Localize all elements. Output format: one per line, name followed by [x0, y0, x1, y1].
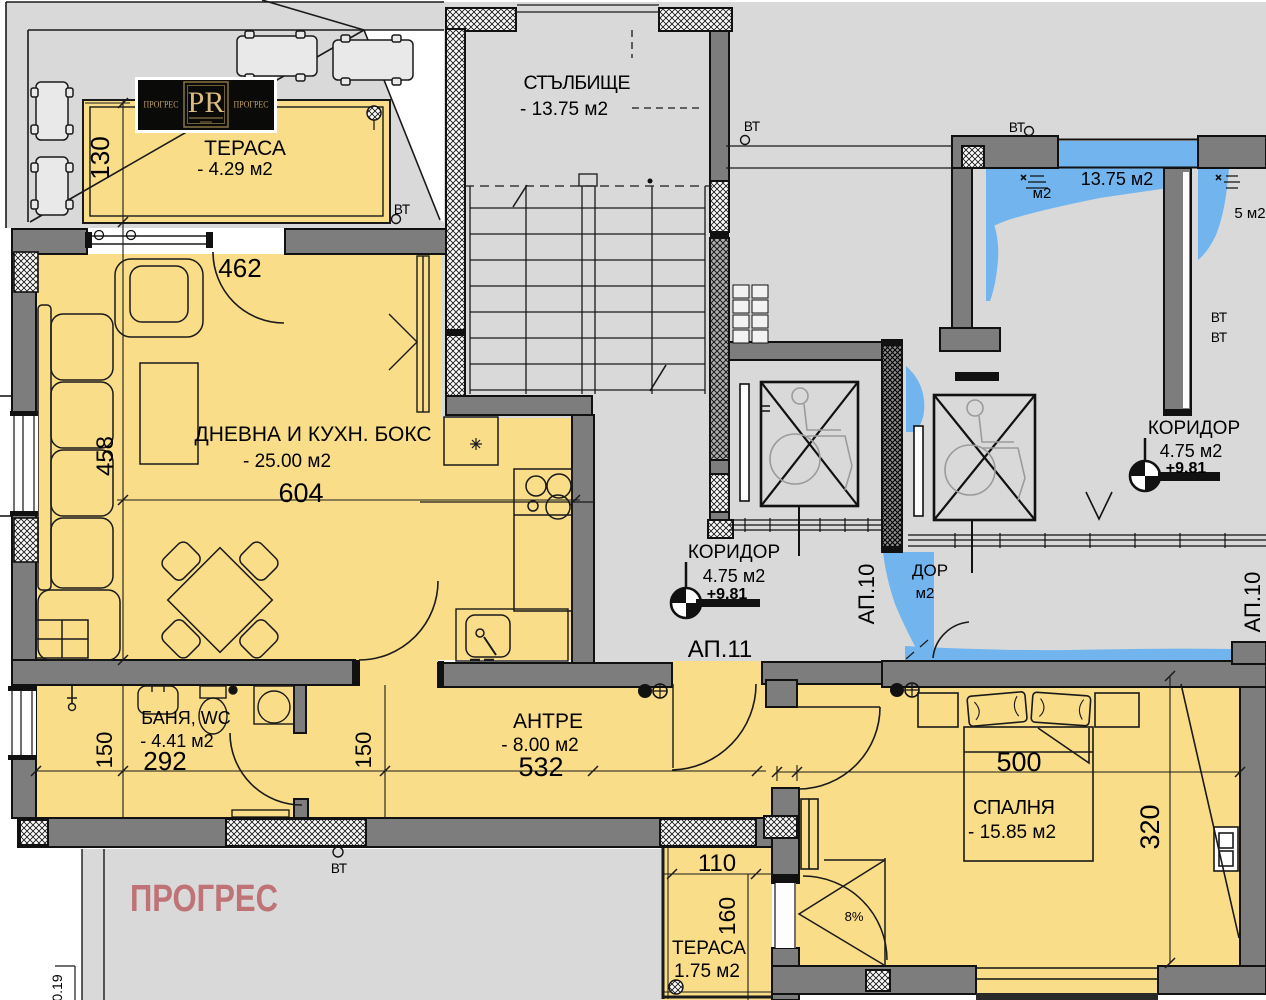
- svg-text:+9.81: +9.81: [707, 586, 748, 603]
- svg-text:КОРИДОР: КОРИДОР: [688, 542, 780, 563]
- svg-text:458: 458: [92, 436, 119, 476]
- svg-text:+9.81: +9.81: [1166, 460, 1207, 477]
- svg-text:5 м2: 5 м2: [1234, 205, 1265, 222]
- svg-text:292: 292: [143, 746, 186, 776]
- svg-text:ПРОГРЕС: ПРОГРЕС: [144, 100, 179, 110]
- svg-text:АП.10: АП.10: [854, 564, 879, 625]
- svg-text:ПРОГРЕС: ПРОГРЕС: [234, 100, 269, 110]
- svg-text:м2: м2: [1033, 185, 1052, 202]
- svg-text:ВТ: ВТ: [1009, 120, 1025, 135]
- svg-text:АП.11: АП.11: [688, 636, 753, 663]
- svg-text:ВТ: ВТ: [1211, 330, 1227, 345]
- svg-text:462: 462: [218, 253, 261, 283]
- svg-text:- 25.00 м2: - 25.00 м2: [243, 451, 331, 472]
- svg-text:532: 532: [518, 752, 563, 782]
- svg-text:PR: PR: [188, 86, 225, 119]
- svg-text:м2: м2: [916, 585, 935, 602]
- svg-text:13.75 м2: 13.75 м2: [1081, 169, 1153, 189]
- svg-text:150: 150: [351, 732, 376, 769]
- svg-text:АНТРЕ: АНТРЕ: [513, 710, 583, 733]
- svg-text:СТЪЛБИЩЕ: СТЪЛБИЩЕ: [524, 72, 631, 94]
- svg-text:ДНЕВНА И КУХН. БОКС: ДНЕВНА И КУХН. БОКС: [194, 423, 431, 446]
- svg-text:ВТ: ВТ: [394, 202, 410, 217]
- svg-text:604: 604: [278, 478, 323, 508]
- svg-text:СПАЛНЯ: СПАЛНЯ: [973, 797, 1055, 819]
- svg-text:110: 110: [698, 850, 736, 877]
- svg-text:ВТ: ВТ: [331, 861, 347, 876]
- svg-text:ТЕРАСА: ТЕРАСА: [672, 938, 746, 959]
- svg-text:500: 500: [996, 747, 1041, 777]
- svg-text:ДОР: ДОР: [912, 561, 948, 580]
- svg-text:- 4.29 м2: - 4.29 м2: [197, 158, 272, 179]
- svg-text:8%: 8%: [845, 909, 864, 924]
- svg-text:- 15.85 м2: - 15.85 м2: [968, 822, 1056, 843]
- svg-text:КОРИДОР: КОРИДОР: [1148, 418, 1240, 439]
- svg-text:1.75 м2: 1.75 м2: [674, 961, 740, 982]
- svg-text:4.75 м2: 4.75 м2: [703, 566, 765, 586]
- svg-text:ПРОГРЕС: ПРОГРЕС: [130, 878, 278, 920]
- svg-text:- 13.75 м2: - 13.75 м2: [520, 99, 608, 120]
- svg-text:ТЕРАСА: ТЕРАСА: [204, 137, 286, 160]
- svg-text:4.75 м2: 4.75 м2: [1160, 441, 1222, 461]
- svg-text:160: 160: [714, 897, 740, 935]
- svg-text:150: 150: [92, 732, 117, 769]
- svg-text:АП.10: АП.10: [1240, 572, 1265, 633]
- svg-text:БАНЯ, WC: БАНЯ, WC: [141, 708, 230, 728]
- svg-text:320: 320: [1135, 804, 1165, 849]
- svg-text:0.19: 0.19: [49, 974, 65, 1000]
- svg-text:130: 130: [85, 136, 115, 179]
- svg-text:ВТ: ВТ: [1211, 310, 1227, 325]
- svg-text:ВТ: ВТ: [744, 119, 760, 134]
